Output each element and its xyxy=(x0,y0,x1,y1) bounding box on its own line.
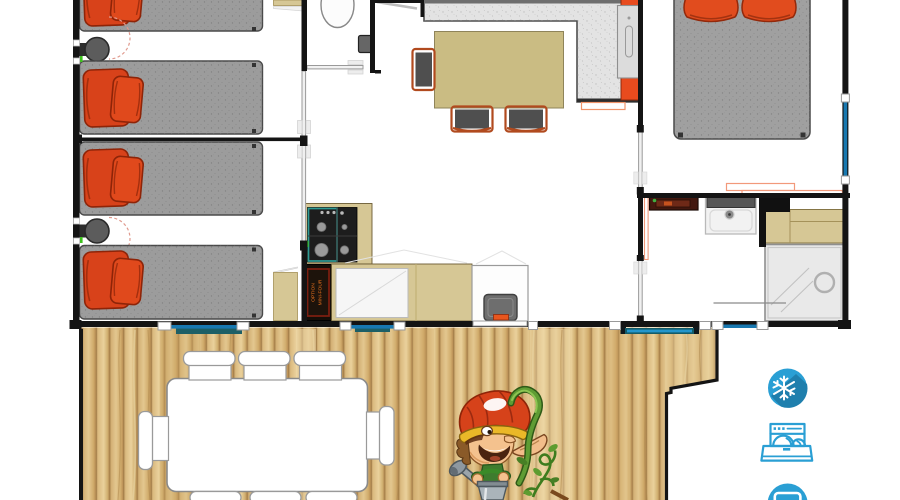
svg-text:OPTION: OPTION xyxy=(311,283,317,302)
svg-text:MINI-FOUR: MINI-FOUR xyxy=(318,279,324,305)
